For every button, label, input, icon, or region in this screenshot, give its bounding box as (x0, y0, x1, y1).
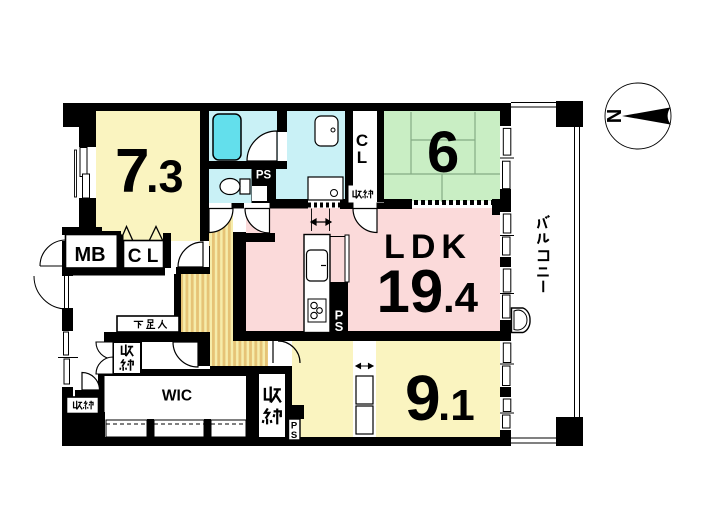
svg-text:.1: .1 (438, 381, 475, 430)
svg-text:WIC: WIC (162, 388, 192, 405)
svg-text:S: S (335, 319, 344, 334)
svg-text:.4: .4 (443, 274, 479, 321)
svg-text:PS: PS (256, 170, 272, 182)
svg-text:S: S (291, 430, 297, 441)
svg-text:N: N (602, 109, 624, 123)
svg-text:19: 19 (377, 258, 444, 325)
svg-text:9: 9 (405, 362, 441, 434)
svg-text:MB: MB (74, 244, 105, 266)
svg-text:C L: C L (128, 246, 159, 267)
svg-text:.3: .3 (146, 151, 184, 202)
svg-text:L: L (357, 148, 367, 167)
svg-text:6: 6 (427, 120, 459, 185)
svg-text:7: 7 (115, 137, 149, 206)
